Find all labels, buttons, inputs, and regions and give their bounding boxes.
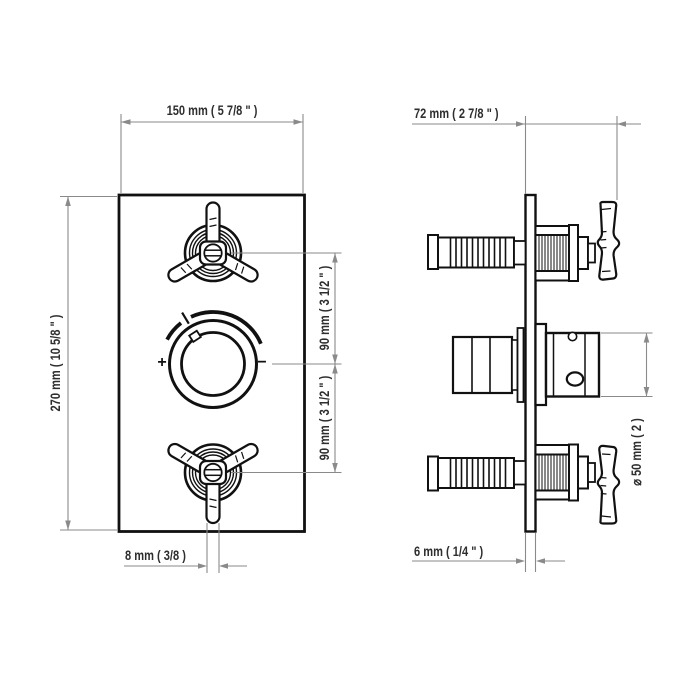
dial-thumb-recess — [567, 372, 583, 385]
front-view — [119, 195, 305, 532]
dial-set-screw — [568, 332, 576, 340]
pipe-neck — [514, 241, 526, 265]
side-plate-thickness-dimension-label: 6 mm ( 1/4 " ) — [414, 545, 498, 559]
front-spoke-width-dimension-label: 8 mm ( 3/8 ) — [125, 549, 199, 563]
dial-plus-label: + — [157, 354, 166, 372]
side-dial-diameter-dimension-label: ⌀ 50 mm ( 2 ) — [630, 411, 644, 493]
cartridge-cap-top — [536, 226, 570, 235]
pipe-flange — [428, 235, 438, 269]
technical-drawing-svg — [0, 0, 700, 700]
cartridge-body — [536, 235, 570, 271]
dial-flange — [536, 324, 547, 405]
side-view — [428, 195, 619, 532]
handle-screw — [204, 244, 221, 261]
side-depth-dimension-label: 72 mm ( 2 7/8 " ) — [414, 107, 517, 121]
technical-drawing-page: 150 mm ( 5 7/8 " ) 270 mm ( 10 5/8 " ) 9… — [0, 0, 700, 700]
cartridge-cap-bottom — [536, 271, 570, 281]
side-bottom-valve — [428, 445, 619, 524]
handle-stem-small — [588, 244, 595, 263]
mixer-collar-ring — [518, 328, 524, 402]
handle-stem — [578, 237, 588, 269]
handle-spoke — [207, 203, 220, 247]
side-handle-profile — [598, 202, 619, 280]
front-upper-spacing-dimension-label: 90 mm ( 3 1/2 " ) — [318, 256, 332, 359]
front-width-dimension-label: 150 mm ( 5 7/8 " ) — [157, 104, 268, 118]
side-top-valve — [428, 202, 619, 281]
side-wall-plate — [526, 195, 536, 532]
mixer-body — [453, 337, 512, 393]
front-lower-spacing-dimension-label: 90 mm ( 3 1/2 " ) — [318, 366, 332, 469]
front-height-dimension-label: 270 mm ( 10 5/8 " ) — [49, 304, 63, 422]
cartridge-flange — [569, 225, 578, 281]
pipe-body — [438, 238, 514, 268]
dial-minus-label: − — [257, 354, 266, 372]
